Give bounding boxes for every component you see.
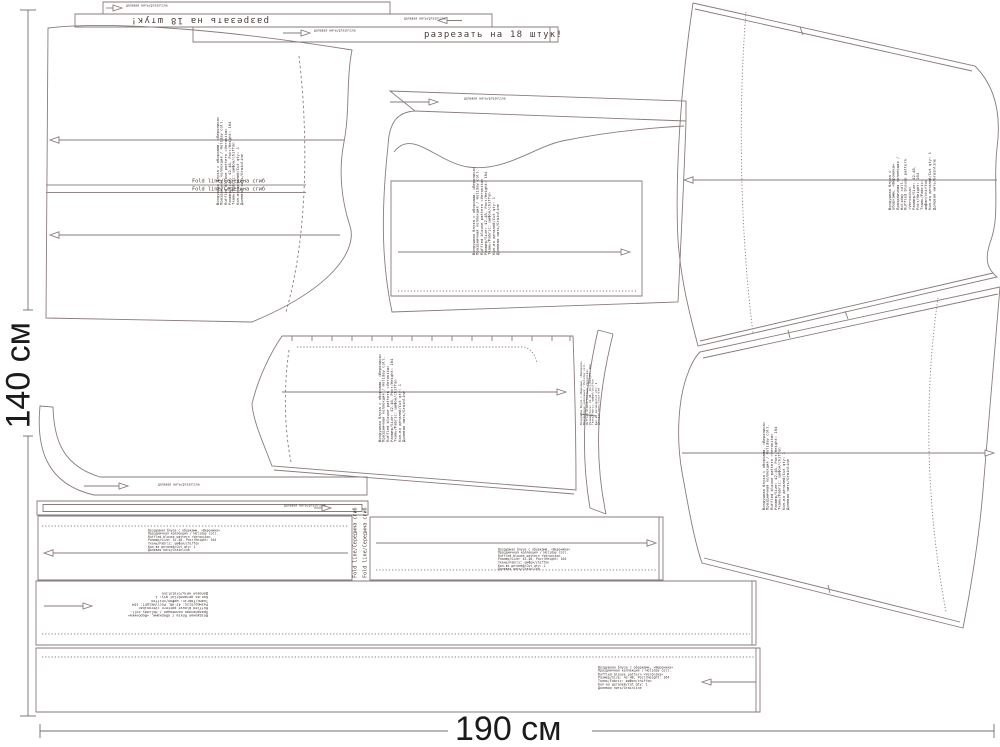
- fold-line-label-v1: Fold line/Середина сгиб: [352, 507, 358, 578]
- back-piece-label: Воздушная блуза с оборками, «Вероника» П…: [216, 117, 244, 205]
- flounce-top-grainline: [44, 603, 92, 609]
- back-roll-line: [286, 56, 305, 312]
- flounce-bottom-grainline: [702, 679, 756, 685]
- front-hem-allowance: [274, 470, 574, 494]
- fold-line-label-v2: Fold line/Середина сгиб: [362, 507, 368, 578]
- sleeve-bottom-roll-line: [929, 298, 946, 612]
- cut-note: разрезать на 18 штук!: [424, 30, 563, 40]
- neckband-piece: [39, 406, 367, 495]
- yoke-piece-label: Воздушная блуза с оборками, «Вероника» П…: [472, 167, 500, 255]
- sleeve-top-label: Воздушная блуза с оборками, «Вероника» П…: [888, 148, 936, 210]
- back-piece: [46, 25, 352, 322]
- sleeve-top-notches: [800, 27, 848, 319]
- yoke-panel-seamline: [391, 181, 642, 296]
- sleeve-top-grainline: [684, 177, 997, 183]
- sleeve-bottom-notches: [788, 330, 830, 593]
- strip2-grain-label: долевая нить/grainline: [404, 17, 446, 20]
- height-dimension-label: 140 см: [0, 323, 39, 429]
- yoke-strip-grain-label: долевая нить/grainline: [464, 97, 506, 100]
- front-piece: [252, 336, 576, 494]
- flounce-top-label: Воздушная блуза с оборками, «Вероника» П…: [128, 591, 208, 617]
- front-gather-dots: [297, 347, 537, 364]
- sleeve-bottom-grainline: [682, 450, 994, 456]
- back-grainline-2: [50, 232, 340, 238]
- yoke-strip-grainline: [390, 99, 438, 105]
- strip3-grain-label: долевая нить/grainline: [314, 29, 356, 32]
- strip1-grain-label: долевая нить/grainline: [126, 4, 168, 7]
- hem-band-left-label: Воздушная блуза с оборками, «Вероника» П…: [148, 529, 220, 552]
- back-grainline-1: [50, 137, 344, 143]
- neckband-grainline: [84, 483, 128, 489]
- hem-band-right-label: Воздушная блуза с оборками, «Вероника» П…: [498, 548, 570, 571]
- cut-note-flipped: разрезать на 18 штук!: [130, 15, 269, 25]
- front-piece-label: Воздушная блуза с оборками, «Вероника» П…: [378, 354, 406, 442]
- sleeve-bottom-label: Воздушная блуза с оборками, «Вероника» П…: [762, 422, 790, 510]
- neckband-grain-label: долевая нить/grainline: [158, 483, 200, 486]
- pattern-pieces-drawing: [0, 0, 1000, 747]
- yoke-strip-seam: [415, 111, 686, 121]
- yoke-grainline: [398, 249, 630, 255]
- back-fold-lines: [46, 185, 306, 193]
- front-grainline: [282, 389, 566, 395]
- hem-band-right-grainline: [376, 540, 656, 546]
- sleeve-top-roll-line: [741, 12, 753, 333]
- sleeve-top-piece: [677, 3, 998, 346]
- flounce-bottom-label: Воздушная блуза с оборками, «Вероника» П…: [598, 666, 673, 690]
- binding-grain-label: долевая нить/grainline: [284, 504, 326, 507]
- collar-band-label: Воздушная блуза с оборками, «Вероника» П…: [580, 361, 601, 425]
- yoke-neckline-seam: [394, 126, 684, 168]
- sleeve-bottom-piece: [679, 287, 1000, 628]
- pattern-layout-sheet: 140 см 190 см разрезать на 18 штук! разр…: [0, 0, 1000, 747]
- front-fold-dash: [285, 350, 291, 462]
- width-dimension-label: 190 см: [455, 710, 562, 747]
- front-yoke-piece: [383, 91, 686, 312]
- front-top-notches: [292, 336, 570, 341]
